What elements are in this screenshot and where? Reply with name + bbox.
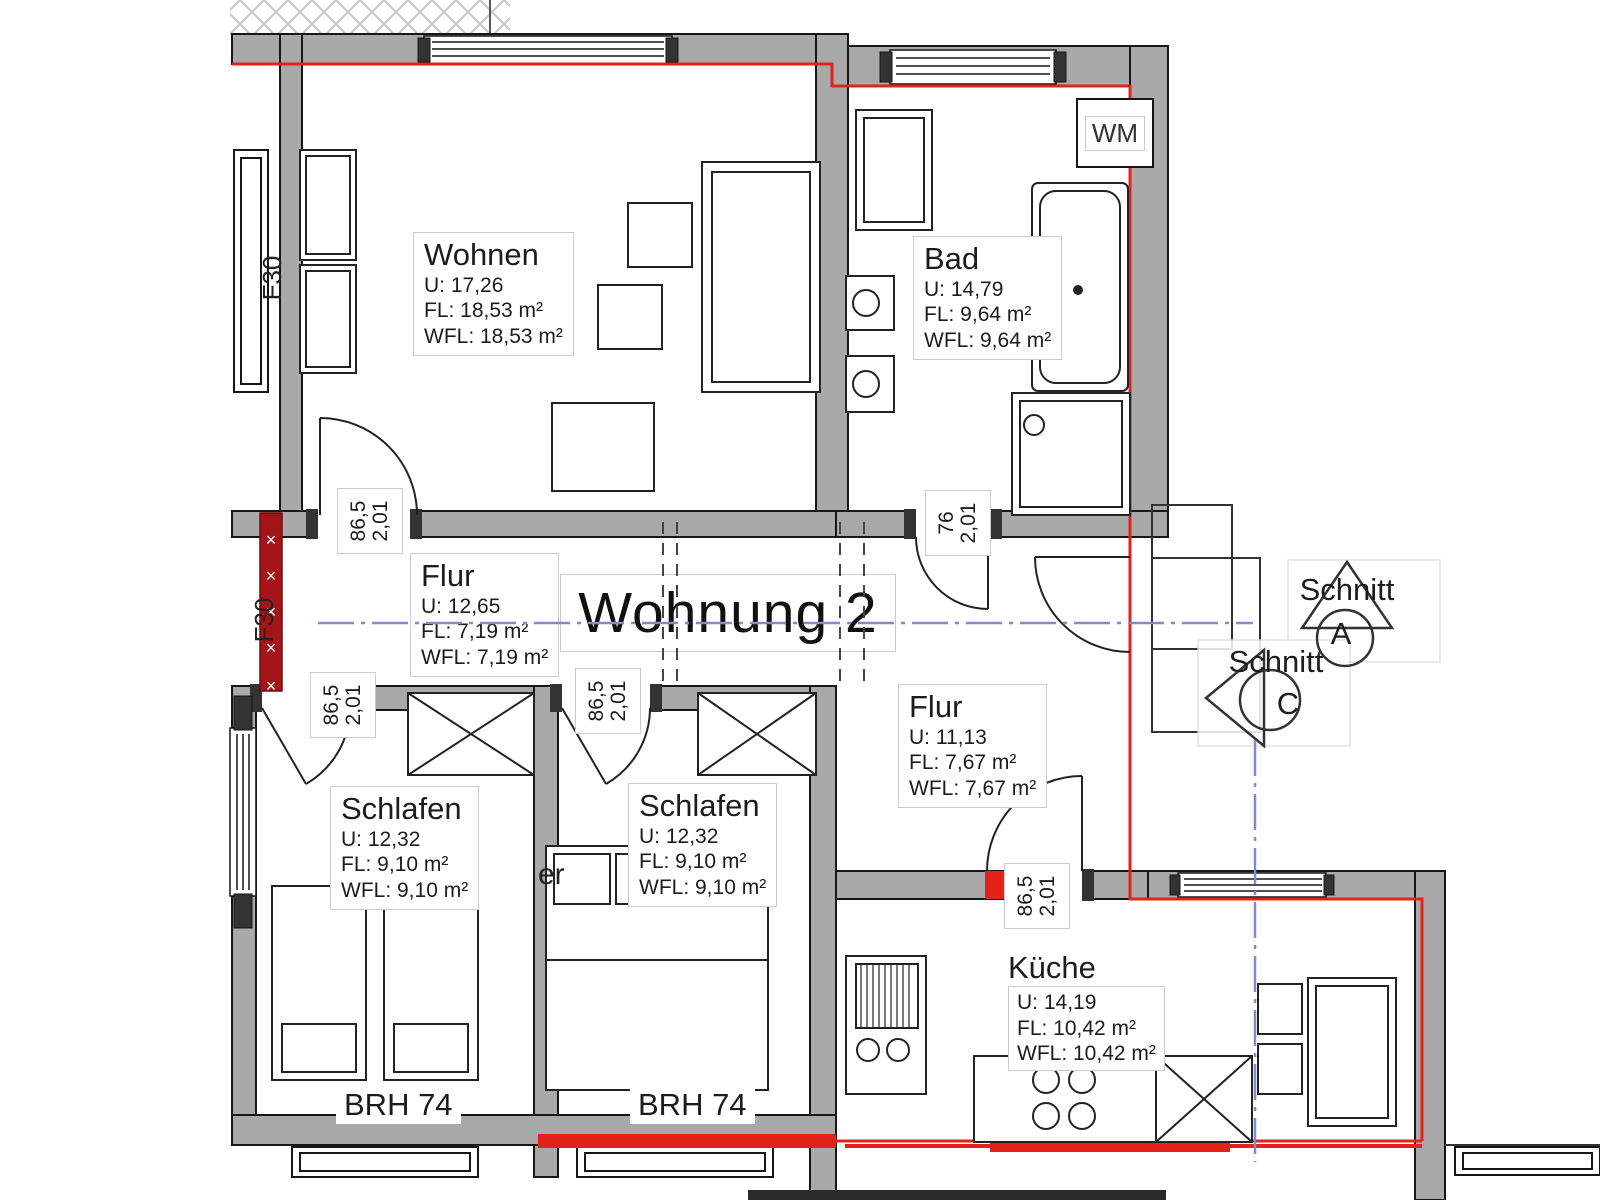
room-fl-bad: FL: 9,64 m²	[924, 302, 1051, 328]
svg-text:×: ×	[266, 676, 277, 696]
room-fl-flur-oben: FL: 7,19 m²	[421, 619, 548, 645]
room-wfl-schlafen-links: WFL: 9,10 m²	[341, 878, 468, 904]
room-u-bad: U: 14,79	[924, 277, 1051, 303]
door-dim-schlafen-mitte: 86,5 2,01	[575, 668, 639, 732]
room-name-bad: Bad	[924, 241, 1051, 277]
door-dim-wohnen-text: 86,5 2,01	[337, 488, 403, 554]
door-dim-bad: 76 2,01	[925, 490, 989, 554]
door-dim-schlafen-mitte-text: 86,5 2,01	[575, 668, 641, 734]
room-name-schlafen-mitte: Schlafen	[639, 788, 766, 824]
door-dim-bad-text: 76 2,01	[925, 490, 991, 556]
room-name-wohnen: Wohnen	[424, 237, 563, 273]
section-c-label: Schnitt	[1229, 644, 1324, 680]
section-c-letter: C	[1277, 686, 1299, 722]
room-details-kueche: U: 14,19 FL: 10,42 m² WFL: 10,42 m²	[1008, 986, 1165, 1071]
room-label-flur-unten: Flur U: 11,13 FL: 7,67 m² WFL: 7,67 m²	[898, 684, 1047, 808]
room-fl-kueche: FL: 10,42 m²	[1017, 1016, 1156, 1042]
room-label-bad: Bad U: 14,79 FL: 9,64 m² WFL: 9,64 m²	[913, 236, 1062, 360]
room-wfl-wohnen: WFL: 18,53 m²	[424, 324, 563, 350]
floorplan-canvas: ××× ××	[0, 0, 1600, 1200]
room-label-wohnen: Wohnen U: 17,26 FL: 18,53 m² WFL: 18,53 …	[413, 232, 574, 356]
door-dim-schlafen-links: 86,5 2,01	[310, 672, 374, 736]
room-fl-schlafen-mitte: FL: 9,10 m²	[639, 849, 766, 875]
door-height-bad: 2,01	[958, 503, 980, 544]
f30-label-oben: F30	[257, 238, 287, 318]
room-u-flur-unten: U: 11,13	[909, 725, 1036, 751]
clipped-text-fragment: er	[538, 858, 565, 892]
f30-label-mitte: F30	[249, 580, 279, 660]
apartment-title: Wohnung 2	[560, 574, 896, 652]
door-width-schlafen-links: 86,5	[321, 685, 343, 726]
section-a-label: Schnitt	[1300, 572, 1395, 608]
room-wfl-schlafen-mitte: WFL: 9,10 m²	[639, 875, 766, 901]
door-height-schlafen-links: 2,01	[343, 685, 365, 726]
room-wfl-flur-oben: WFL: 7,19 m²	[421, 645, 548, 671]
door-width-bad: 76	[936, 511, 958, 534]
room-name-flur-oben: Flur	[421, 558, 548, 594]
door-height-kueche: 2,01	[1037, 876, 1059, 917]
room-label-kueche: Küche U: 14,19 FL: 10,42 m² WFL: 10,42 m…	[1008, 950, 1165, 1071]
door-width-kueche: 86,5	[1015, 876, 1037, 917]
room-wfl-bad: WFL: 9,64 m²	[924, 328, 1051, 354]
door-width-schlafen-mitte: 86,5	[586, 681, 608, 722]
brh-label-mitte: BRH 74	[630, 1086, 755, 1124]
door-height-schlafen-mitte: 2,01	[608, 681, 630, 722]
brh-label-links: BRH 74	[336, 1086, 461, 1124]
room-u-schlafen-links: U: 12,32	[341, 827, 468, 853]
room-u-flur-oben: U: 12,65	[421, 594, 548, 620]
door-dim-wohnen: 86,5 2,01	[337, 488, 401, 552]
door-height-wohnen: 2,01	[370, 501, 392, 542]
room-name-kueche: Küche	[1008, 950, 1165, 986]
door-dim-kueche-text: 86,5 2,01	[1004, 863, 1070, 929]
room-label-schlafen-links: Schlafen U: 12,32 FL: 9,10 m² WFL: 9,10 …	[330, 786, 479, 910]
door-dim-kueche: 86,5 2,01	[1004, 863, 1068, 927]
room-wfl-kueche: WFL: 10,42 m²	[1017, 1041, 1156, 1067]
section-a-letter: A	[1331, 616, 1352, 652]
door-dim-schlafen-links-text: 86,5 2,01	[310, 672, 376, 738]
room-fl-flur-unten: FL: 7,67 m²	[909, 750, 1036, 776]
room-u-wohnen: U: 17,26	[424, 273, 563, 299]
room-label-schlafen-mitte: Schlafen U: 12,32 FL: 9,10 m² WFL: 9,10 …	[628, 783, 777, 907]
washing-machine-label: WM	[1085, 116, 1145, 151]
room-wfl-flur-unten: WFL: 7,67 m²	[909, 776, 1036, 802]
svg-text:×: ×	[266, 530, 277, 550]
room-u-schlafen-mitte: U: 12,32	[639, 824, 766, 850]
hatch-strip	[230, 0, 510, 36]
door-width-wohnen: 86,5	[348, 501, 370, 542]
misc-structure	[748, 1146, 1422, 1200]
room-fl-schlafen-links: FL: 9,10 m²	[341, 852, 468, 878]
room-u-kueche: U: 14,19	[1017, 990, 1156, 1016]
room-label-flur-oben: Flur U: 12,65 FL: 7,19 m² WFL: 7,19 m²	[410, 553, 559, 677]
room-name-flur-unten: Flur	[909, 689, 1036, 725]
room-name-schlafen-links: Schlafen	[341, 791, 468, 827]
washing-machine-box: WM	[1076, 98, 1154, 168]
room-fl-wohnen: FL: 18,53 m²	[424, 298, 563, 324]
